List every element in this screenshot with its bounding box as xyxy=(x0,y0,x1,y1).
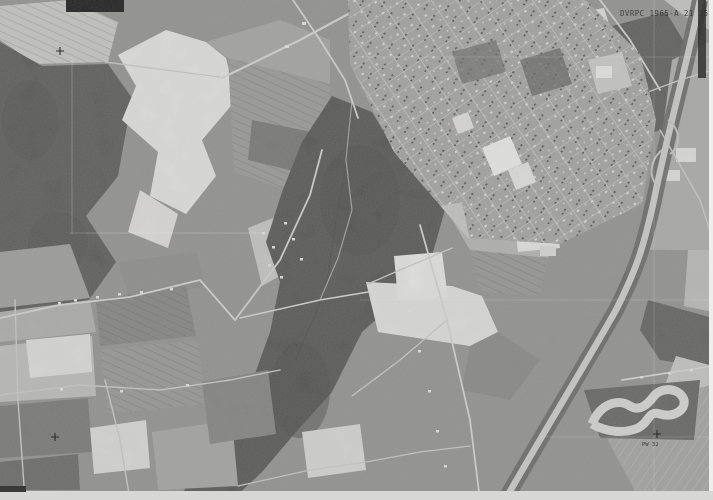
aerial-photo: PW 32 DVRPC 1965-A 21 352 xyxy=(0,0,713,500)
photo-grain-texture xyxy=(0,0,713,500)
edge-artifact-corner xyxy=(0,486,26,492)
right-margin-strip xyxy=(709,0,713,500)
edge-artifact-bar xyxy=(698,0,706,78)
bottom-margin-strip xyxy=(0,491,713,500)
control-point-label: PW 32 xyxy=(642,442,659,448)
aerial-photo-frame: PW 32 DVRPC 1965-A 21 352 xyxy=(0,0,713,500)
